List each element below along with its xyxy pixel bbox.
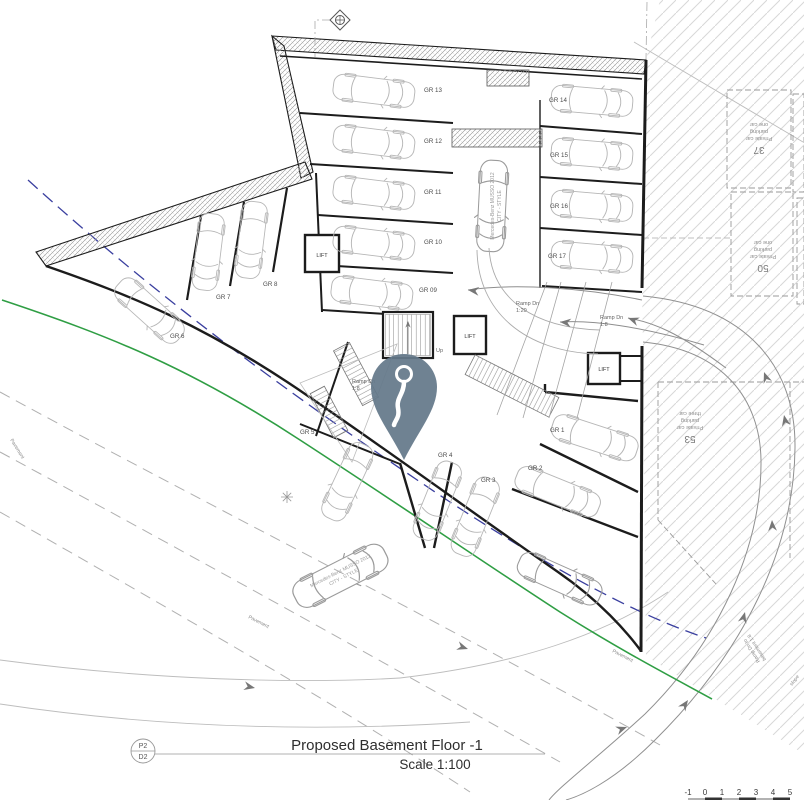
- car-icon: [445, 473, 505, 561]
- vent-grille: [452, 129, 542, 147]
- parking-bay-label: GR 11: [424, 189, 442, 196]
- lift-shaft: LIFT: [588, 353, 641, 384]
- arrow-icon: [456, 641, 469, 653]
- parking-bay-label: GR 1: [550, 427, 565, 434]
- car-icon: [513, 546, 607, 611]
- wall-band-top: [272, 36, 646, 74]
- parcel-desc: three car: [679, 410, 701, 416]
- floor-plan-page: 37 Private car parking one car 50 Privat…: [0, 0, 804, 800]
- outer-wall-right: [641, 346, 642, 652]
- ramp-label: Ramp Dn: [516, 301, 539, 307]
- vehicle-trim-label: CITY - STYLE: [497, 190, 503, 222]
- boundary-blue-line: [28, 180, 706, 638]
- staircase: Up: [383, 312, 443, 358]
- parking-bay-label: GR 3: [481, 477, 496, 484]
- parcel-number: 37: [753, 144, 765, 155]
- parcel-desc: parking: [750, 128, 768, 134]
- parking-bay-label: GR 15: [550, 152, 568, 159]
- lift-label: LIFT: [316, 253, 328, 259]
- floor-plan-drawing: 37 Private car parking one car 50 Privat…: [0, 0, 804, 800]
- ramp-grade-label: 1:20: [516, 308, 527, 314]
- parking-bay-label: GR 16: [550, 203, 568, 210]
- parking-bay-label: GR 8: [263, 281, 278, 288]
- neighbour-site-area: 37 Private car parking one car 50 Privat…: [634, 0, 804, 754]
- lift-shaft: LIFT: [305, 235, 339, 272]
- section-marker-icon: [330, 10, 350, 30]
- up-label: Up: [436, 348, 443, 354]
- revision-top: P2: [139, 743, 148, 750]
- parcel-desc: one car: [754, 239, 773, 245]
- lift-label: LIFT: [598, 367, 610, 373]
- lift-label: LIFT: [464, 334, 476, 340]
- car-icon: [331, 222, 416, 264]
- wall-band-west: [36, 162, 312, 266]
- vehicle-make-label: Mercedes-Benz MUSSO 2012: [490, 172, 496, 239]
- survey-star-icon: [281, 491, 293, 503]
- parcel-desc: Private car: [746, 135, 772, 141]
- arrow-icon: [243, 681, 256, 692]
- scale-tick: 0: [703, 788, 708, 797]
- moving-cars: [287, 160, 606, 615]
- title-block: Proposed Basement Floor -1 Scale 1:100 P…: [131, 737, 545, 772]
- parking-bay-label: GR 5: [300, 429, 315, 436]
- scale-tick: 4: [771, 788, 776, 797]
- scale-tick: -1: [684, 788, 692, 797]
- site-hatch-region: [642, 0, 804, 754]
- drawing-scale: Scale 1:100: [399, 757, 470, 772]
- parcel-desc: Private car: [750, 253, 776, 259]
- drive-path-arc: [468, 287, 642, 300]
- parcel-desc: Private car: [677, 424, 703, 430]
- ramp-grade-label: 1:8: [600, 322, 608, 328]
- car-icon: [329, 272, 414, 314]
- car-icon: [331, 121, 416, 163]
- ramp-side-wall: [545, 384, 638, 401]
- parcel-number: 50: [757, 262, 769, 273]
- parking-bay-label: GR 13: [424, 87, 442, 94]
- scale-tick: 1: [720, 788, 725, 797]
- arrow-icon: [615, 723, 628, 735]
- car-icon: [331, 172, 416, 214]
- scale-tick: 3: [754, 788, 759, 797]
- car-icon: [331, 70, 416, 112]
- parking-bay-label: GR 7: [216, 294, 231, 301]
- parking-bay-label: GR 2: [528, 465, 543, 472]
- parking-bay-label: GR 4: [438, 452, 453, 459]
- parcel-desc: parking: [754, 246, 772, 252]
- pavement-label: Pavement: [247, 614, 270, 630]
- parking-bay-label: GR 6: [170, 333, 185, 340]
- car-icon: [548, 409, 642, 467]
- road-edge-line: [0, 704, 470, 727]
- parking-bay-label: GR 12: [424, 138, 442, 145]
- road-dashed-line: [0, 452, 560, 762]
- arrow-icon: [467, 286, 479, 296]
- scale-tick: 5: [788, 788, 793, 797]
- bay-divider-walls-south: [512, 444, 638, 537]
- parking-bay-label: GR 14: [549, 97, 567, 104]
- arrow-icon: [678, 697, 692, 711]
- parking-bay-label: GR 09: [419, 287, 437, 294]
- pavement-label: Pavement: [8, 438, 25, 461]
- drawing-title: Proposed Basement Floor -1: [291, 737, 483, 754]
- ramp-label: Ramp Dn: [600, 315, 623, 321]
- ramp-strip: [333, 342, 378, 405]
- bay-wall: [300, 424, 400, 464]
- parcel-desc: parking: [681, 417, 699, 423]
- parking-bay-label: GR 10: [424, 239, 442, 246]
- parcel-number: 53: [684, 433, 696, 444]
- location-pin-icon: [371, 354, 437, 460]
- parcel-desc: one car: [750, 121, 769, 127]
- scale-tick: 2: [737, 788, 742, 797]
- road-edge-line: [0, 660, 400, 681]
- scale-bar: -1 0 1 2 3 4 5: [684, 788, 792, 800]
- vent-grille: [487, 70, 529, 86]
- revision-bottom: D2: [139, 754, 148, 761]
- lift-shaft: LIFT: [454, 316, 486, 354]
- revision-badge: P2 D2: [131, 739, 155, 763]
- ramp-grade-label: 1:8: [352, 386, 360, 392]
- parking-bay-label: GR 17: [548, 253, 566, 260]
- pavement-label: Pavement: [611, 648, 634, 664]
